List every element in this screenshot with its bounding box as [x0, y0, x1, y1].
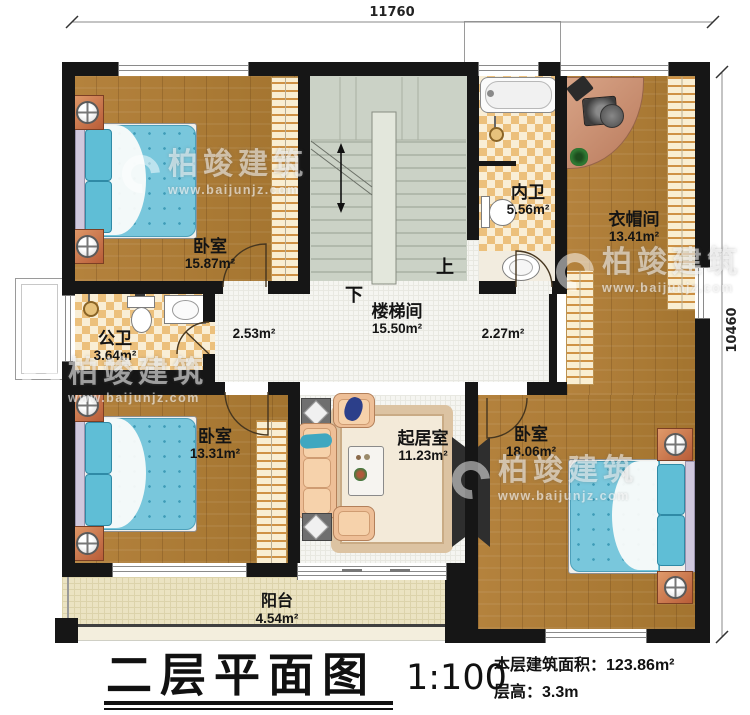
room-label-living: 起居室 11.23m²: [398, 429, 449, 463]
floor-area-value: 123.86m²: [606, 657, 675, 674]
room-label-bath-inner: 内卫 5.56m²: [507, 183, 550, 217]
room-name: 内卫: [507, 183, 550, 202]
room-label-hall-left: 2.53m²: [233, 326, 276, 341]
room-area: 2.53m²: [233, 326, 276, 341]
room-name: 卧室: [185, 237, 235, 256]
floor-plan: 卧室 15.87m² 公卫 3.64m² 楼梯间 15.50m² 2.53m² …: [0, 0, 750, 715]
floor-height-info: 层高：3.3m: [494, 678, 578, 702]
room-area: 3.64m²: [94, 348, 137, 363]
plan-scale: 1:100: [406, 661, 507, 696]
room-area: 2.27m²: [482, 326, 525, 341]
room-label-bedroom-bl: 卧室 13.31m²: [190, 427, 240, 461]
room-area: 15.87m²: [185, 256, 235, 271]
room-name: 衣帽间: [609, 210, 660, 229]
room-name: 卧室: [190, 427, 240, 446]
room-label-balcony: 阳台 4.54m²: [256, 593, 299, 626]
floor-area-label: 本层建筑面积：: [494, 657, 606, 674]
title-underline: [104, 701, 393, 705]
floor-area-info: 本层建筑面积：123.86m²: [494, 651, 675, 675]
dimension-top: 11760: [369, 5, 414, 20]
stairs-up-label: 上: [436, 253, 454, 279]
room-label-cloakroom: 衣帽间 13.41m²: [609, 210, 660, 244]
room-label-bedroom-tl: 卧室 15.87m²: [185, 237, 235, 271]
floor-height-value: 3.3m: [542, 684, 578, 701]
stairs-down-label: 下: [345, 281, 363, 307]
room-name: 公卫: [94, 329, 137, 348]
room-label-stairwell: 楼梯间 15.50m²: [372, 302, 423, 336]
room-area: 18.06m²: [506, 444, 556, 459]
room-label-bedroom-br: 卧室 18.06m²: [506, 425, 556, 459]
floor-height-label: 层高：: [494, 684, 542, 701]
room-label-bath-public: 公卫 3.64m²: [94, 329, 137, 363]
room-name: 楼梯间: [372, 302, 423, 321]
room-area: 5.56m²: [507, 202, 550, 217]
room-area: 13.31m²: [190, 446, 240, 461]
plan-title: 二层平面图: [106, 652, 376, 698]
room-area: 15.50m²: [372, 321, 423, 336]
room-name: 卧室: [506, 425, 556, 444]
room-area: 4.54m²: [256, 611, 299, 626]
room-label-hall-right: 2.27m²: [482, 326, 525, 341]
room-area: 13.41m²: [609, 229, 660, 244]
room-name: 阳台: [256, 593, 299, 611]
title-underline-thin: [104, 708, 393, 710]
room-name: 起居室: [398, 429, 449, 448]
room-area: 11.23m²: [398, 448, 449, 463]
dimension-right: 10460: [725, 300, 741, 360]
